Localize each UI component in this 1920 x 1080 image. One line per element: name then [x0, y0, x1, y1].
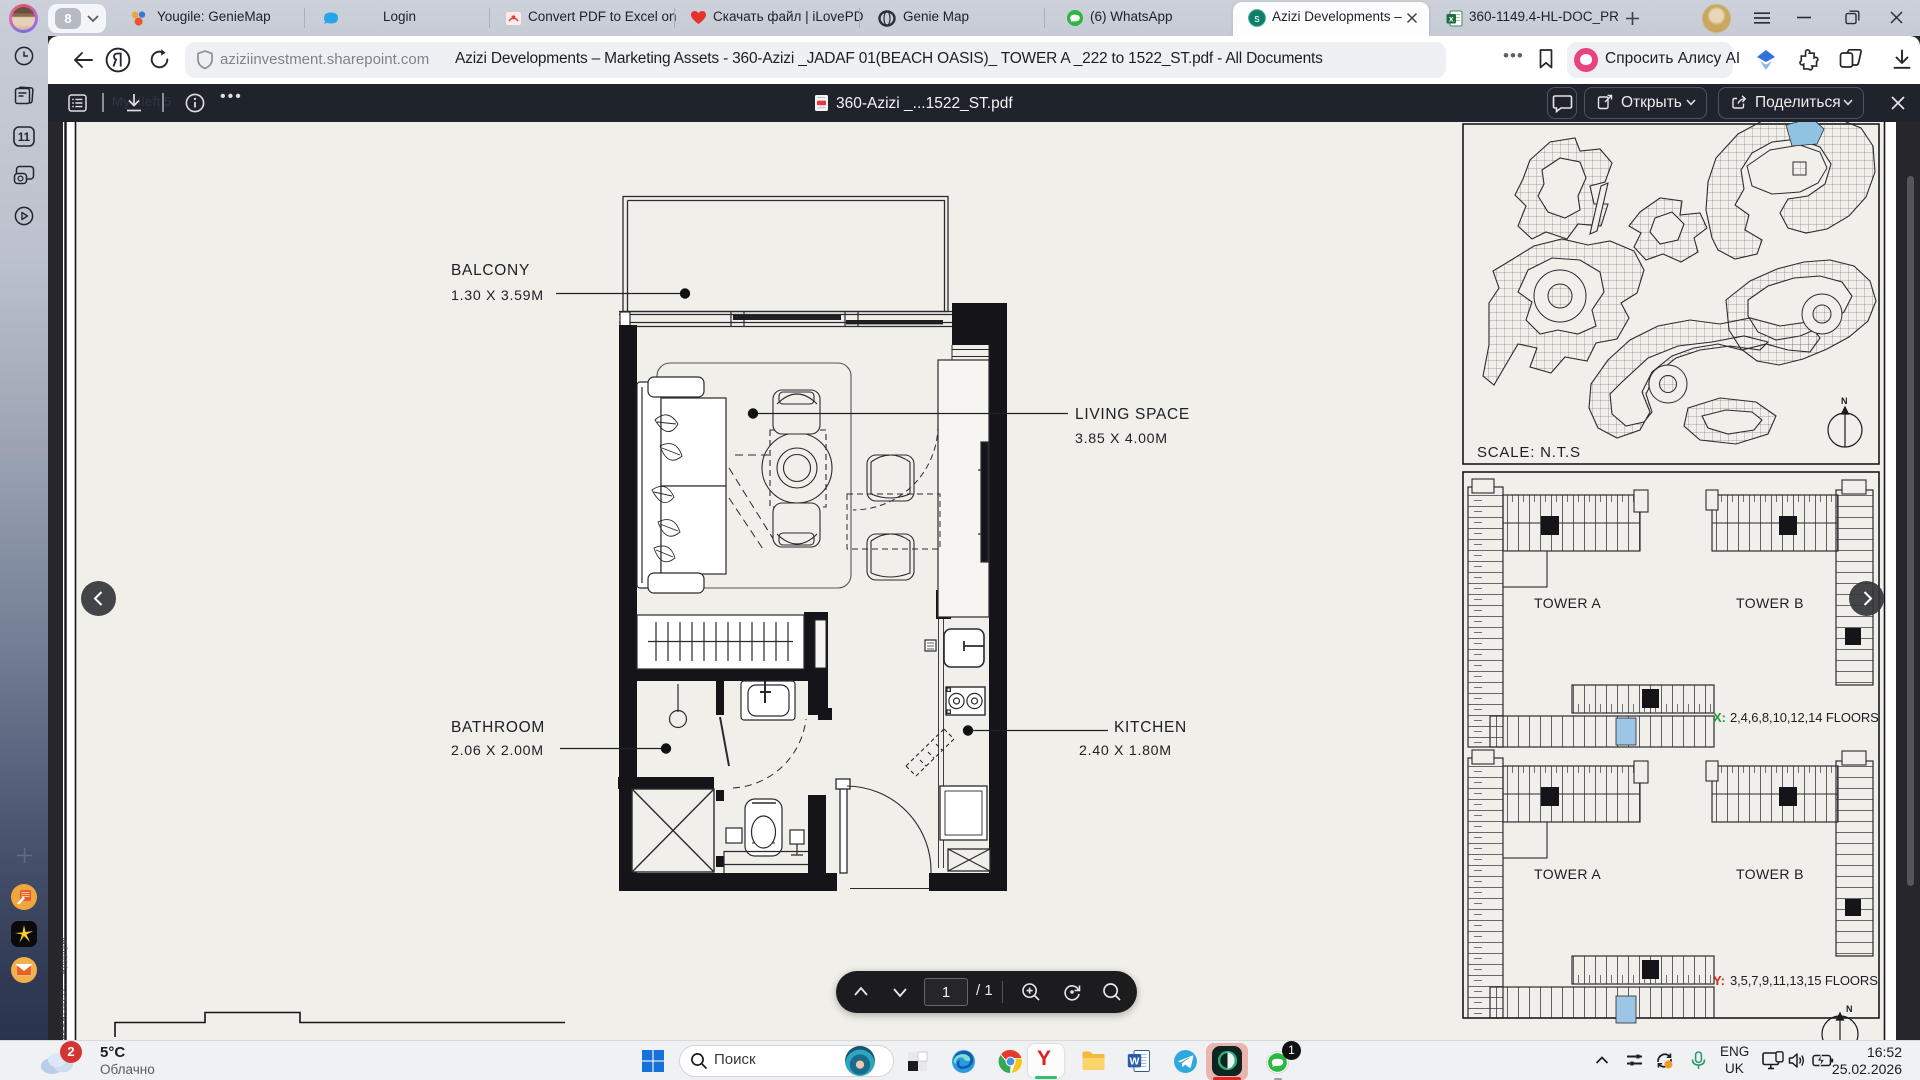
svg-text:BATHROOM: BATHROOM: [451, 719, 545, 736]
svg-text:3,5,7,9,11,13,15 FLOORS: 3,5,7,9,11,13,15 FLOORS: [1730, 973, 1878, 988]
svg-text:X:: X:: [1713, 710, 1726, 725]
svg-text:Y:: Y:: [1713, 973, 1725, 988]
svg-text:BALCONY: BALCONY: [451, 262, 530, 279]
svg-text:N: N: [1841, 396, 1848, 406]
svg-text:N: N: [1846, 1004, 1853, 1014]
svg-text:W: W: [1130, 1055, 1140, 1067]
svg-text:x: x: [1449, 14, 1454, 24]
svg-text:2.40 X 1.80M: 2.40 X 1.80M: [1079, 743, 1172, 759]
svg-text:3.85 X 4.00M: 3.85 X 4.00M: [1075, 431, 1168, 447]
svg-text:2.06 X 2.00M: 2.06 X 2.00M: [451, 743, 544, 759]
svg-text:2,4,6,8,10,12,14 FLOORS: 2,4,6,8,10,12,14 FLOORS: [1730, 710, 1879, 725]
svg-text:KITCHEN: KITCHEN: [1114, 719, 1187, 736]
svg-text:LIVING SPACE: LIVING SPACE: [1075, 406, 1190, 423]
svg-text:APPROVED : Apppryer: APPROVED : Apppryer: [58, 936, 68, 1040]
svg-text:TOWER A: TOWER A: [1534, 595, 1601, 611]
svg-text:TOWER B: TOWER B: [1736, 595, 1804, 611]
svg-text:1.30 X 3.59M: 1.30 X 3.59M: [451, 288, 544, 304]
svg-text:TOWER B: TOWER B: [1736, 866, 1804, 882]
svg-text:SCALE: N.T.S: SCALE: N.T.S: [1477, 444, 1581, 461]
svg-text:s: s: [1254, 13, 1260, 25]
svg-text:TOWER A: TOWER A: [1534, 866, 1601, 882]
svg-text:11: 11: [18, 132, 31, 144]
